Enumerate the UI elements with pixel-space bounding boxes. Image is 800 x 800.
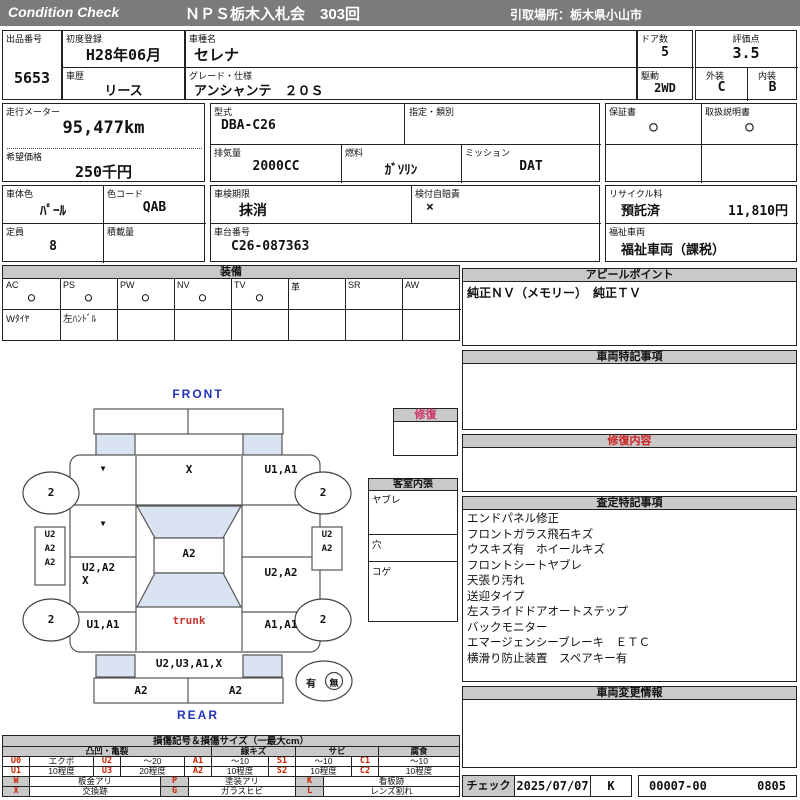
legend-code: U0 xyxy=(3,757,30,767)
cabin-row-hole: 穴 xyxy=(369,536,457,562)
recycle-welfare-cell: リサイクル料 預託済 11,810円 福祉車両 福祉車両（課税） xyxy=(605,185,797,262)
sill-left-mark: U2 xyxy=(35,530,65,540)
changes-body xyxy=(462,700,797,768)
capacity-value: 8 xyxy=(3,239,103,254)
legend-desc: 〜10 xyxy=(296,757,352,767)
legend-group: 線キズ xyxy=(212,747,296,757)
mark-rear-bumper-right: A2 xyxy=(188,684,283,697)
sheet-code: 00007-00 xyxy=(649,779,707,793)
legend-code: G xyxy=(161,787,189,797)
trunk-label: trunk xyxy=(158,614,220,627)
rating-value: 3.5 xyxy=(696,44,796,62)
assessment-item: フロントガラス飛石キズ xyxy=(467,528,792,544)
divider xyxy=(186,67,638,68)
legend-code: S2 xyxy=(269,767,296,777)
appeal-header: アピールポイント xyxy=(462,268,797,282)
mark-right-slide-door: U2,A2 xyxy=(251,566,311,579)
divider xyxy=(402,279,403,341)
repair-box-body xyxy=(393,422,458,456)
legend-code: S1 xyxy=(269,757,296,767)
legend-desc: エクボ xyxy=(30,757,94,767)
doors-drive-cell: ドア数 5 駆動 2WD xyxy=(637,30,693,100)
divider xyxy=(231,279,232,341)
legend-desc: 10程度 xyxy=(296,767,352,777)
price-value: 250千円 xyxy=(3,161,204,182)
rear-label: REAR xyxy=(158,708,238,722)
legend-title: 損傷記号＆損傷サイズ（一最大cm） xyxy=(2,735,460,747)
divider xyxy=(345,279,346,341)
welfare-label: 福祉車両 xyxy=(609,225,645,238)
auction-title: ＮＰＳ栃木入札会 303回 xyxy=(185,3,360,24)
wheel-rear-left: 2 xyxy=(36,613,66,626)
warranty-mark: ○ xyxy=(606,119,701,135)
manual-label: 取扱説明書 xyxy=(705,105,750,118)
legend-code: U3 xyxy=(94,767,121,777)
legend-code: W xyxy=(3,777,30,787)
legend-group: 腐食 xyxy=(379,747,459,757)
inspection-label: 車検期限 xyxy=(214,187,250,200)
mark-right-quarter: A1,A1 xyxy=(251,618,311,631)
repair-box-header: 修復 xyxy=(393,408,458,422)
brand-logo: Condition Check xyxy=(8,4,119,20)
wheel-rear-right: 2 xyxy=(308,613,338,626)
manual-mark: ○ xyxy=(701,119,798,135)
legend-desc: 塗装アリ xyxy=(189,777,296,787)
legend-desc: 看板跡 xyxy=(324,777,459,787)
assessment-item: 左スライドドアオートステップ xyxy=(467,605,792,621)
drive-value: 2WD xyxy=(638,81,692,95)
check-sign: K xyxy=(591,776,631,796)
repair-detail-header: 修復内容 xyxy=(462,434,797,448)
displacement-label: 排気量 xyxy=(214,146,241,159)
warranty-manual-cell: 保証書 ○ 取扱説明書 ○ xyxy=(605,103,797,182)
first-reg-value: H28年06月 xyxy=(63,44,184,65)
legend-desc: 10程度 xyxy=(379,767,459,777)
cabin-row-tear: ヤブレ xyxy=(369,491,457,535)
divider xyxy=(404,104,405,144)
legend-code: C2 xyxy=(352,767,379,777)
sheet-code-box: 00007-00 0805 xyxy=(638,775,797,797)
model-code-block: 型式 DBA-C26 指定・類別 排気量 2000CC 燃料 ｶﾞｿﾘﾝ ミッシ… xyxy=(210,103,600,182)
equipment-label-aw: AW xyxy=(405,280,419,290)
load-label: 積載量 xyxy=(107,225,134,238)
body-color-value: ﾊﾟｰﾙ xyxy=(3,200,103,219)
color-capacity-cell: 車体色 ﾊﾟｰﾙ 色コード QAB 定員 8 積載量 xyxy=(2,185,205,262)
grade-value: アンシャンテ ２０Ｓ xyxy=(194,80,323,99)
mark-rear-panel: U2,U3,A1,X xyxy=(139,657,239,670)
legend-group: 凸凹・亀裂 xyxy=(3,747,212,757)
welfare-value: 福祉車両（課税） xyxy=(621,239,725,258)
legend-desc: 板金アリ xyxy=(30,777,161,787)
sill-left-mark: A2 xyxy=(35,544,65,554)
divider xyxy=(606,144,798,145)
mileage-price-cell: 走行メーター 95,477km 希望価格 250千円 xyxy=(2,103,205,182)
repair-detail-body xyxy=(462,448,797,492)
sill-right-mark: A2 xyxy=(312,544,342,554)
sill-right-mark: U2 xyxy=(312,530,342,540)
recycle-fee: 11,810円 xyxy=(728,200,788,219)
mark-left-front-door: ▼ xyxy=(73,519,133,528)
assessment-item: 送迎タイプ xyxy=(467,590,792,606)
designation-label: 指定・類別 xyxy=(409,105,454,118)
doors-label: ドア数 xyxy=(641,32,668,45)
lot-number-value: 5653 xyxy=(3,69,61,87)
sill-left-mark: A2 xyxy=(35,558,65,568)
legend-code: U1 xyxy=(3,767,30,777)
legend-code: K xyxy=(296,777,324,787)
history-value: リース xyxy=(63,80,184,99)
legend-row: U1 10程度 U3 20程度 A2 10程度 S2 10程度 C2 10程度 xyxy=(2,767,460,777)
check-label: チェック xyxy=(463,776,515,796)
legend-group: サビ xyxy=(296,747,379,757)
legend-code: P xyxy=(161,777,189,787)
fuel-label: 燃料 xyxy=(345,146,363,159)
divider xyxy=(211,223,601,224)
assessment-item: バックモニター xyxy=(467,621,792,637)
mark-front-left-fender: ▼ xyxy=(73,464,133,473)
mission-label: ミッション xyxy=(465,146,510,159)
assessment-item: エマージェンシーブレーキ ＥＴＣ xyxy=(467,636,792,652)
equipment-label-ps: PS xyxy=(63,280,75,290)
mileage-label: 走行メーター xyxy=(6,105,60,118)
legend-code: L xyxy=(296,787,324,797)
divider xyxy=(211,144,601,145)
divider xyxy=(606,223,798,224)
model-code-label: 型式 xyxy=(214,105,232,118)
legend-code: A2 xyxy=(185,767,212,777)
mark-roof: A2 xyxy=(159,547,219,560)
wheel-front-left: 2 xyxy=(36,486,66,499)
assessment-header: 査定特記事項 xyxy=(462,496,797,510)
legend-code: C1 xyxy=(352,757,379,767)
divider xyxy=(103,186,104,263)
divider xyxy=(7,148,202,149)
interior-value: B xyxy=(747,80,798,95)
color-code-value: QAB xyxy=(103,200,206,215)
equipment-label-tv: TV xyxy=(234,280,246,290)
legend-code: U2 xyxy=(94,757,121,767)
legend-code: A1 xyxy=(185,757,212,767)
equipment-mark-ps: ○ xyxy=(60,290,117,304)
spare-tire-no: 無 xyxy=(326,676,342,689)
legend-desc: レンズ割れ xyxy=(324,787,459,797)
first-reg-history-cell: 初度登録 H28年06月 車歴 リース xyxy=(62,30,185,100)
legend-row: U0 エクボ U2 〜20 A1 〜10 S1 〜10 C1 〜10 xyxy=(2,757,460,767)
special-notes-header: 車両特記事項 xyxy=(462,350,797,364)
assessment-item: ウスキズ有 ホイールキズ xyxy=(467,543,792,559)
mark-left-quarter: U1,A1 xyxy=(73,618,133,631)
divider xyxy=(63,67,186,68)
equipment-note-lhd: 左ﾊﾝﾄﾞﾙ xyxy=(63,311,96,325)
legend-desc: 〜20 xyxy=(121,757,185,767)
equipment-label-leather: 革 xyxy=(291,280,300,293)
equipment-label-sr: SR xyxy=(348,280,361,290)
mark-rear-bumper-left: A2 xyxy=(94,684,188,697)
mark-left-slide-door: U2,A2 xyxy=(82,561,134,574)
divider xyxy=(288,279,289,341)
divider xyxy=(3,309,461,310)
legend-desc: 20程度 xyxy=(121,767,185,777)
divider xyxy=(60,279,61,341)
legend-desc: 〜10 xyxy=(379,757,459,767)
assessment-item: エンドパネル修正 xyxy=(467,512,792,528)
inspection-value: 抹消 xyxy=(239,200,267,220)
legend-row: X 交換跡 G ガラスヒビ L レンズ割れ xyxy=(2,787,460,797)
equipment-label-pw: PW xyxy=(120,280,135,290)
warranty-label: 保証書 xyxy=(609,105,636,118)
mark-front-right-fender: U1,A1 xyxy=(251,463,311,476)
mission-value: DAT xyxy=(461,159,601,174)
legend-desc: 交換跡 xyxy=(30,787,161,797)
assessment-item: 横滑り防止装置 スペアキー有 xyxy=(467,652,792,668)
insurance-label: 検付自賠責 xyxy=(415,187,460,200)
divider xyxy=(411,186,412,223)
check-row: チェック 2025/07/07 K xyxy=(462,775,632,797)
inspection-chassis-cell: 車検期限 抹消 検付自賠責 × 車台番号 C26-087363 xyxy=(210,185,600,262)
equipment-mark-nv: ○ xyxy=(174,290,231,304)
mileage-value: 95,477km xyxy=(3,118,204,138)
chassis-value: C26-087363 xyxy=(231,239,309,254)
doors-value: 5 xyxy=(638,45,692,60)
assessment-item: フロントシートヤブレ xyxy=(467,559,792,575)
equipment-note-wtire: Wﾀｲﾔ xyxy=(6,311,29,325)
divider xyxy=(174,279,175,341)
wheel-front-right: 2 xyxy=(308,486,338,499)
cabin-row-burn: コゲ xyxy=(369,563,457,620)
model-grade-cell: 車種名 セレナ グレード・仕様 アンシャンテ ２０Ｓ xyxy=(185,30,637,100)
color-code-label: 色コード xyxy=(107,187,143,200)
legend-desc: ガラスヒビ xyxy=(189,787,296,797)
legend-group-row: 凸凹・亀裂 線キズ サビ 腐食 xyxy=(2,747,460,757)
equipment-header: 装備 xyxy=(2,265,460,279)
legend-code: X xyxy=(3,787,30,797)
pickup-location: 引取場所：栃木県小山市 xyxy=(510,6,642,23)
divider xyxy=(117,279,118,341)
insurance-value: × xyxy=(426,200,434,215)
legend-desc: 10程度 xyxy=(212,767,269,777)
divider xyxy=(3,223,206,224)
appeal-body: 純正ＮＶ（メモリー） 純正ＴＶ xyxy=(462,282,797,346)
check-date: 2025/07/07 xyxy=(515,776,591,796)
equipment-mark-ac: ○ xyxy=(3,290,60,304)
body-color-label: 車体色 xyxy=(6,187,33,200)
exterior-value: C xyxy=(696,80,747,95)
changes-header: 車両変更情報 xyxy=(462,686,797,700)
recycle-status: 預託済 xyxy=(621,200,660,219)
divider xyxy=(638,67,694,68)
fuel-value: ｶﾞｿﾘﾝ xyxy=(341,159,461,178)
cabin-row-label: 穴 xyxy=(372,537,382,551)
capacity-label: 定員 xyxy=(6,225,24,238)
sheet-number: 0805 xyxy=(757,779,786,793)
legend-desc: 10程度 xyxy=(30,767,94,777)
cabin-row-label: コゲ xyxy=(372,564,391,578)
displacement-value: 2000CC xyxy=(211,159,341,174)
mark-hood: X xyxy=(159,463,219,476)
recycle-label: リサイクル料 xyxy=(609,187,663,200)
cabin-body: ヤブレ 穴 コゲ xyxy=(368,491,458,622)
cabin-row-label: ヤブレ xyxy=(372,492,401,506)
mark-left-slide-door-2: X xyxy=(82,574,134,587)
legend-desc: 〜10 xyxy=(212,757,269,767)
divider xyxy=(701,104,702,183)
model-code-value: DBA-C26 xyxy=(221,118,276,133)
equipment-label-nv: NV xyxy=(177,280,190,290)
equipment-mark-tv: ○ xyxy=(231,290,288,304)
rating-cell: 評価点 3.5 外装 C 内装 B xyxy=(695,30,797,100)
lot-number-cell: 出品番号 5653 xyxy=(2,30,62,100)
spare-tire-yes: 有 xyxy=(303,675,319,690)
chassis-label: 車台番号 xyxy=(214,225,250,238)
special-notes-body xyxy=(462,364,797,430)
equipment-mark-pw: ○ xyxy=(117,290,174,304)
cabin-header: 客室内張 xyxy=(368,478,458,491)
legend-row: W 板金アリ P 塗装アリ K 看板跡 xyxy=(2,777,460,787)
title-bar: Condition Check ＮＰＳ栃木入札会 303回 引取場所：栃木県小山… xyxy=(0,0,800,26)
front-label: FRONT xyxy=(158,387,238,401)
lot-number-label: 出品番号 xyxy=(6,32,42,45)
equipment-label-ac: AC xyxy=(6,280,19,290)
assessment-item: 天張り汚れ xyxy=(467,574,792,590)
model-value: セレナ xyxy=(194,44,239,65)
equipment-table: AC PS PW NV TV 革 SR AW ○ ○ ○ ○ ○ Wﾀｲﾔ 左ﾊ… xyxy=(2,279,460,341)
auction-sheet: Condition Check ＮＰＳ栃木入札会 303回 引取場所：栃木県小山… xyxy=(0,0,800,800)
assessment-body: エンドパネル修正 フロントガラス飛石キズ ウスキズ有 ホイールキズ フロントシー… xyxy=(462,510,797,682)
